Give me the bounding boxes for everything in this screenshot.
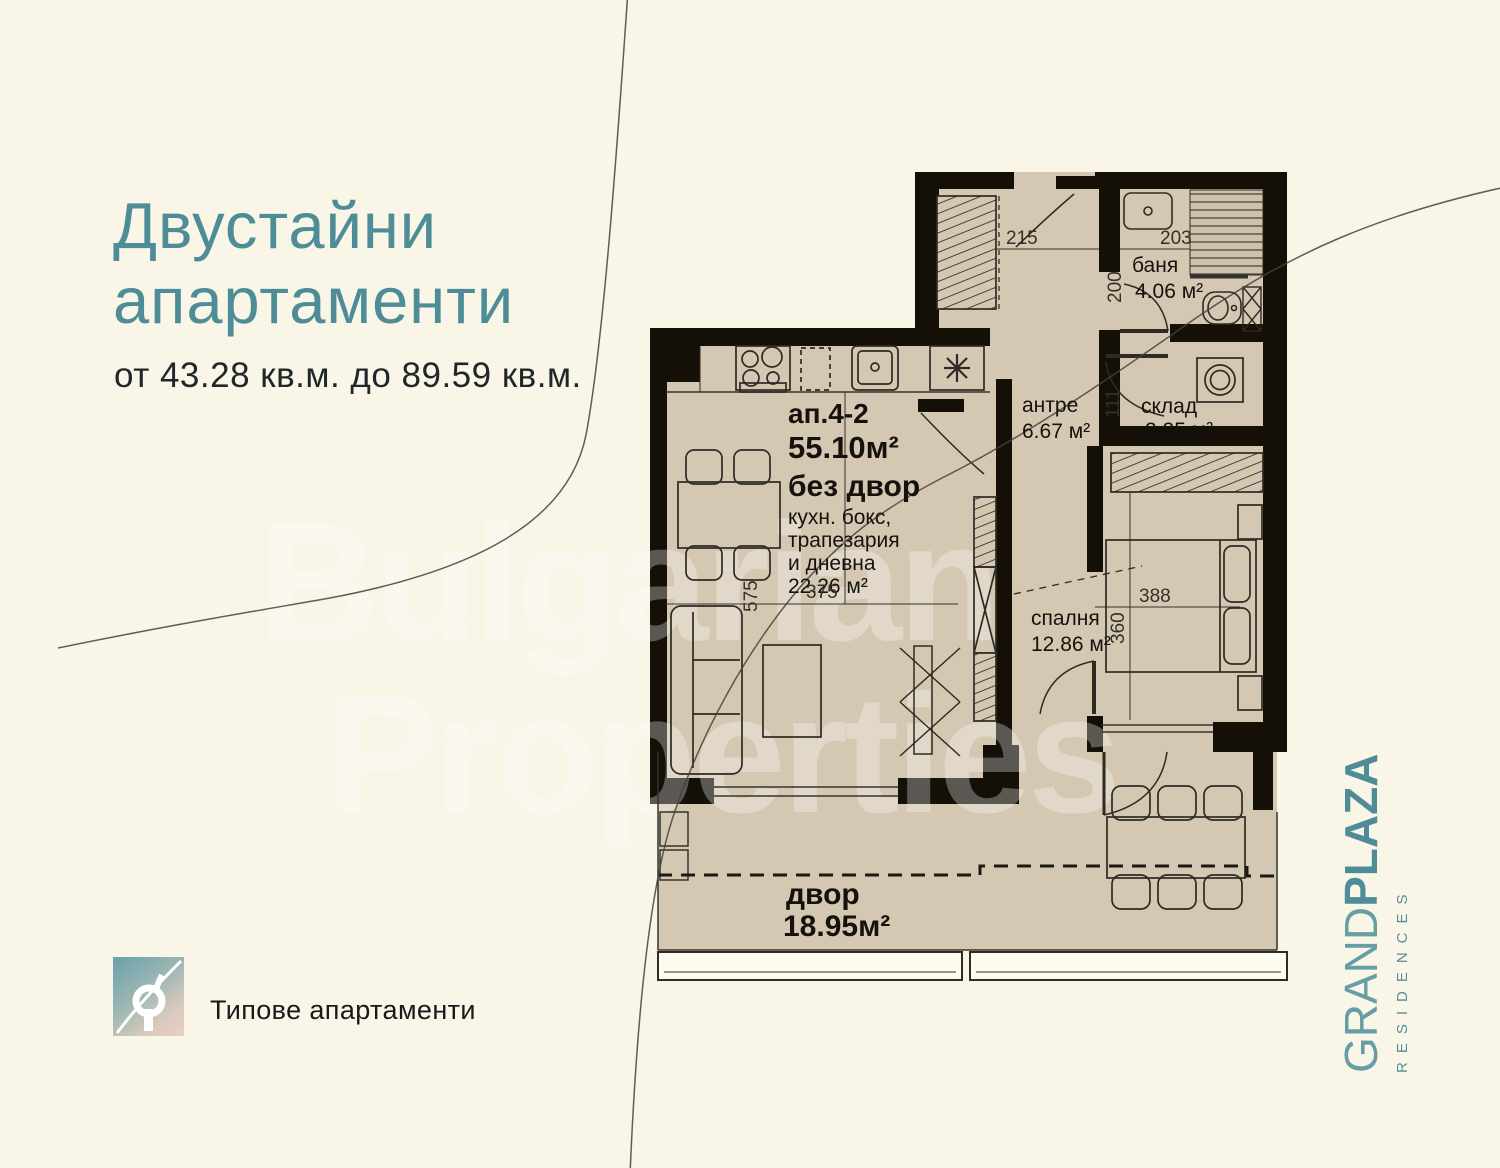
living-label: трапезария bbox=[788, 529, 900, 552]
apartment-id: ап.4-2 bbox=[788, 398, 869, 429]
bedroom-wardrobe bbox=[1111, 453, 1263, 492]
yard-label: двор bbox=[786, 878, 860, 911]
hallway-area: 6.67 м² bbox=[1022, 420, 1090, 443]
bedroom-area: 12.86 м² bbox=[1031, 633, 1111, 656]
bathroom-area: 4.06 м² bbox=[1135, 280, 1203, 303]
logo-glyph-icon bbox=[113, 957, 184, 1036]
storage-area: 2.25 м² bbox=[1145, 419, 1213, 442]
footer-caption: Типове апартаменти bbox=[210, 995, 476, 1036]
page-title: Двустайни апартаменти bbox=[113, 188, 514, 339]
brand-sub: RESIDENCES bbox=[1394, 747, 1411, 1073]
living-label: и дневна bbox=[788, 552, 876, 575]
brand-block: GRANDPLAZA RESIDENCES bbox=[1338, 733, 1411, 1073]
brand-name: GRANDPLAZA bbox=[1338, 733, 1384, 1073]
apartment-note: без двор bbox=[788, 470, 920, 503]
planters bbox=[658, 952, 1287, 980]
company-logo bbox=[113, 957, 184, 1036]
page-subtitle: от 43.28 кв.м. до 89.59 кв.м. bbox=[114, 356, 582, 396]
living-label: кухн. бокс, bbox=[788, 506, 891, 529]
watermark-line2: Properties bbox=[326, 660, 1117, 848]
dim-bath-d: 200 bbox=[1105, 271, 1126, 303]
title-line1: Двустайни bbox=[113, 188, 514, 263]
title-line2: апартаменти bbox=[113, 263, 514, 338]
dim-bath-w: 203 bbox=[1160, 228, 1192, 249]
dim-entry: 215 bbox=[1006, 228, 1038, 249]
shower bbox=[1190, 190, 1263, 275]
storage-label: склад bbox=[1141, 395, 1197, 418]
dim-storage: 111 bbox=[1103, 389, 1124, 418]
hallway-label: антре bbox=[1022, 394, 1078, 417]
dim-living-w: 375 bbox=[806, 582, 838, 603]
apartment-area: 55.10м² bbox=[788, 430, 899, 465]
bathroom-label: баня bbox=[1132, 254, 1178, 277]
dim-living-d: 575 bbox=[741, 580, 762, 612]
dim-bedroom-w: 388 bbox=[1139, 586, 1171, 607]
brand-grand: GRAND bbox=[1335, 907, 1387, 1073]
dim-bedroom-d: 360 bbox=[1108, 612, 1129, 644]
brochure-page: Bulgarian Properties bbox=[0, 0, 1500, 1168]
footer: Типове апартаменти bbox=[113, 957, 476, 1036]
brand-plaza: PLAZA bbox=[1335, 754, 1387, 907]
yard-area: 18.95м² bbox=[783, 910, 890, 943]
hall-wardrobe bbox=[937, 196, 999, 309]
bedroom-label: спалня bbox=[1031, 607, 1100, 630]
